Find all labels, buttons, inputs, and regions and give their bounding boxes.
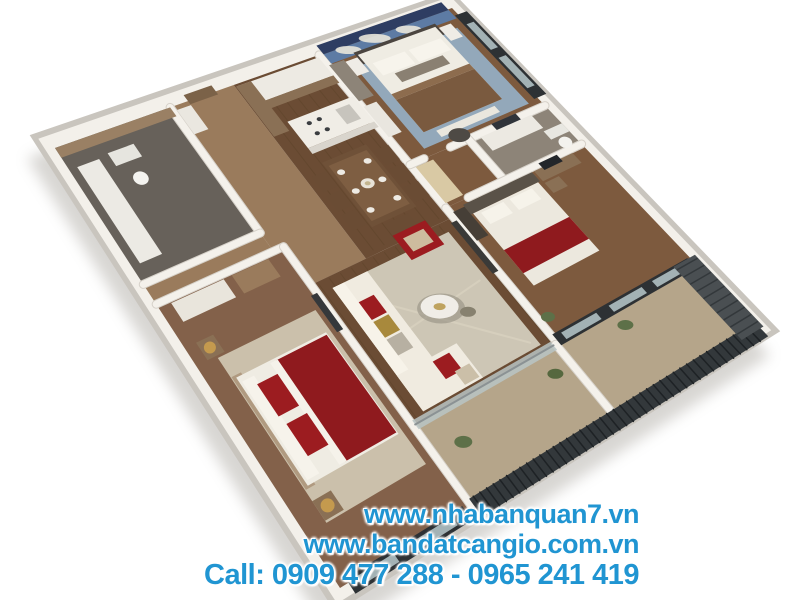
coffee-table-center [434, 303, 446, 310]
stove-burner [315, 131, 320, 135]
dinner-plate [364, 158, 372, 164]
balcony-plant [547, 369, 563, 379]
watermark: www.nhabanquan7.vn www.bandatcangio.com.… [204, 499, 639, 592]
bed2-plant [541, 312, 555, 322]
dinner-plate [393, 195, 401, 201]
stove-burner [307, 121, 312, 125]
master-pouf [448, 128, 470, 142]
dinner-plate [378, 177, 386, 183]
dinner-plate [352, 188, 360, 194]
gold-lamp [204, 342, 216, 354]
balcony-plant [617, 320, 633, 330]
watermark-website-1: www.nhabanquan7.vn [204, 499, 639, 529]
dinner-plate [367, 207, 375, 213]
side-tray [460, 307, 476, 317]
watermark-website-2: www.bandatcangio.com.vn [204, 529, 639, 559]
dinner-plate [337, 169, 345, 175]
real-estate-listing-image: www.nhabanquan7.vn www.bandatcangio.com.… [0, 0, 800, 600]
stove-burner [325, 127, 330, 131]
stove-burner [317, 117, 322, 121]
balcony-plant [454, 436, 472, 448]
table-centerpiece-core [365, 181, 371, 185]
watermark-phone: Call: 0909 477 288 - 0965 241 419 [204, 559, 639, 592]
